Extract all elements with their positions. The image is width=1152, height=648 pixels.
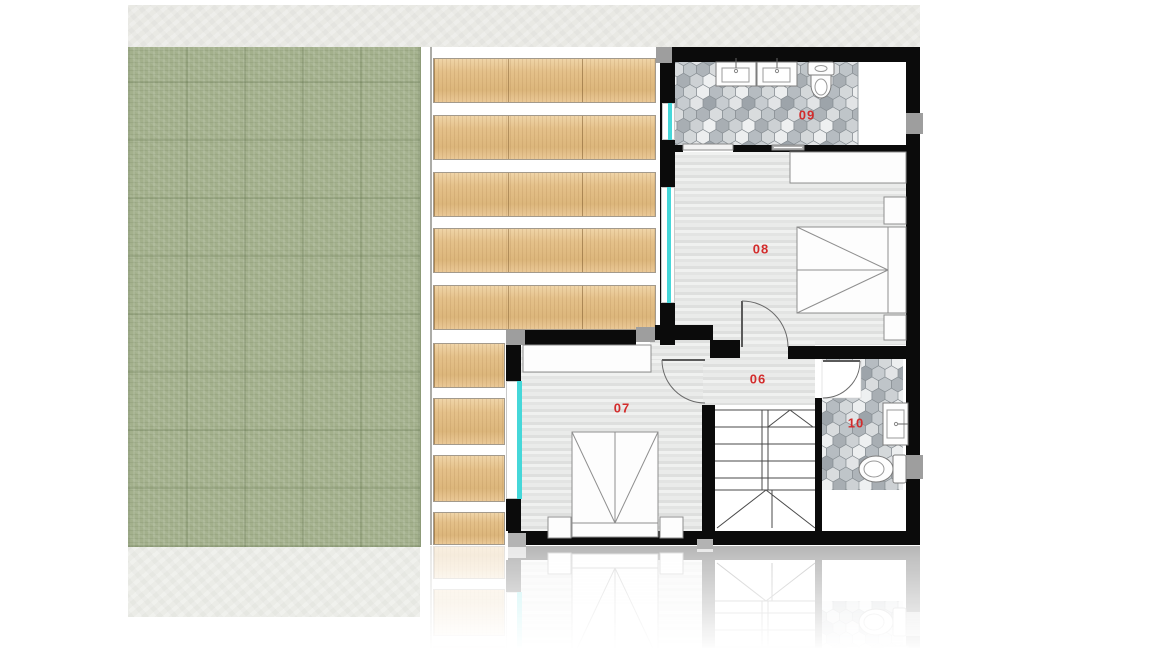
room-label-10: 10 (848, 416, 864, 431)
bottom-wall-band (128, 547, 420, 617)
nightstand (884, 197, 906, 224)
nightstand (660, 517, 683, 538)
bedroom-07 (523, 345, 705, 538)
wardrobe (523, 345, 651, 372)
room-label-08: 08 (753, 242, 769, 257)
toilet (859, 455, 906, 483)
top-wall-band (128, 5, 920, 47)
room-label-06: 06 (750, 372, 766, 387)
staircase (715, 405, 815, 531)
nightstand (884, 315, 906, 340)
building-and-deck: 06 07 08 09 10 (430, 47, 920, 545)
floor-plan-image: 06 07 08 09 10 (0, 0, 1152, 648)
nightstand (548, 517, 571, 538)
fixtures-overlay (430, 47, 920, 545)
bathroom-09 (675, 58, 906, 150)
door-arc (742, 301, 788, 347)
double-bed (572, 432, 658, 537)
double-bed (797, 227, 906, 313)
sink-vanity (757, 58, 797, 86)
room-label-07: 07 (614, 401, 630, 416)
sink-vanity (716, 58, 756, 86)
door-arc (662, 360, 705, 403)
wardrobe (790, 152, 906, 183)
room-label-09: 09 (799, 108, 815, 123)
sink-vanity (883, 403, 908, 445)
garden-grass-area (128, 47, 421, 547)
